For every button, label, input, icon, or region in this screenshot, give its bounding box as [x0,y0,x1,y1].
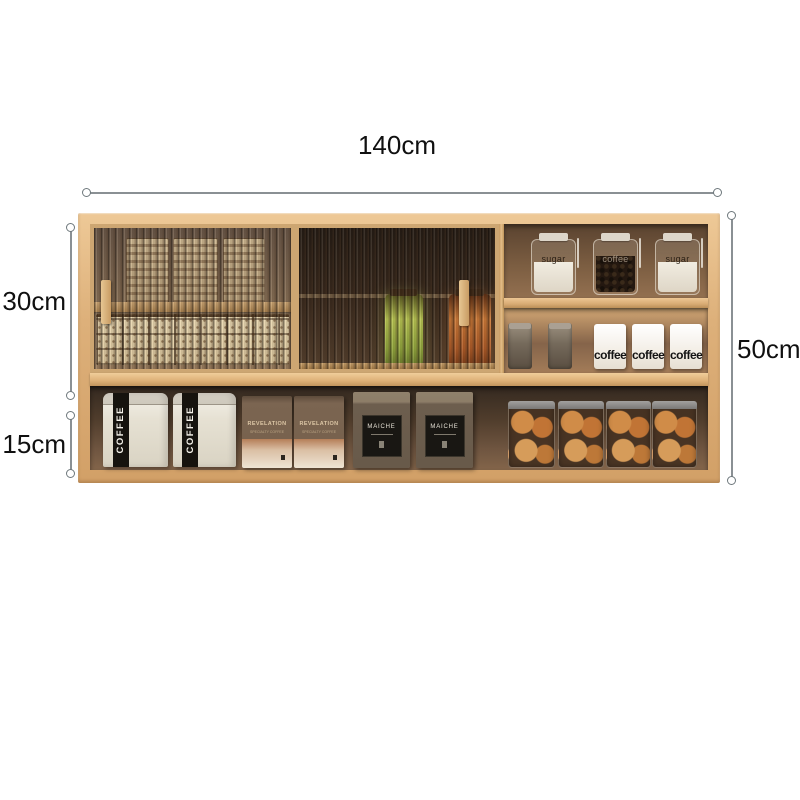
jar-label: sugar [532,254,575,264]
jar-label: sugar [656,254,699,264]
jar-shelf: sugar coffee sugar [504,224,708,298]
middle-shelf-board [90,373,708,386]
dimension-endpoint-circle [66,411,75,420]
kraft-coffee-box: REVELATION SPECIALTY COFFEE [294,396,344,468]
wire-baskets [96,314,289,365]
cookie-jar [558,402,604,468]
lower-height-dimension-label: 15cm [0,429,66,460]
box-label: REVELATION [242,421,292,427]
wall-cabinet: sugar coffee sugar [78,213,720,483]
dimension-endpoint-circle [82,188,91,197]
jar-label: coffee [594,254,637,264]
dimension-endpoint-circle [727,211,736,220]
sugar-jar: sugar [655,239,700,295]
bag-stripe: COFFEE [113,393,129,467]
coffee-bag: COFFEE [173,393,236,467]
dimension-endpoint-circle [66,223,75,232]
box-black-label: MAICHE [362,415,402,457]
shelf-board [504,298,708,308]
jar-contents [658,262,697,292]
bag-label: COFFEE [115,406,126,454]
label-mark [379,441,384,448]
mug-label: coffee [670,348,702,362]
dark-canister [548,323,572,369]
green-jar [385,294,423,366]
box-label: MAICHE [430,424,458,430]
dimension-endpoint-circle [66,469,75,478]
coffee-bean-jar: coffee [593,239,638,295]
glass-door-area [90,224,499,373]
pantry-package [126,238,169,304]
dimension-endpoint-circle [713,188,722,197]
jar-clamp [577,238,579,268]
label-rule [434,434,456,435]
dimension-endpoint-circle [727,476,736,485]
width-dimension-label: 140cm [337,130,457,161]
open-shelves: sugar coffee sugar [504,224,708,373]
sugar-jar: sugar [531,239,576,295]
door-handle [459,280,469,326]
total-height-dimension-label: 50cm [737,334,800,365]
jar-cap [390,289,417,296]
cookie-jar [508,402,555,468]
coffee-mug: coffee [632,324,664,369]
label-rule [371,434,393,435]
coffee-bag: COFFEE [103,393,168,467]
upper-height-dimension-line [70,231,72,392]
jar-clamp [701,238,703,268]
box-label: REVELATION [294,421,344,427]
kraft-coffee-box: REVELATION SPECIALTY COFFEE [242,396,292,468]
mug-shelf: coffee coffee coffee [504,308,708,373]
jar-clamp [639,238,641,268]
upper-height-dimension-label: 30cm [0,286,66,317]
glass-door-right [295,224,500,373]
mug-label: coffee [594,348,626,362]
bag-label: COFFEE [185,406,196,454]
interior-base [299,363,496,369]
box-label: MAICHE [367,424,395,430]
bag-stripe: COFFEE [182,393,198,467]
pantry-package [173,238,218,304]
box-lower-panel [242,439,292,468]
cookie-jar [652,402,697,468]
dimension-endpoint-circle [66,391,75,400]
box-black-label: MAICHE [425,415,465,457]
dark-label-box: MAICHE [353,392,410,468]
jar-contents [534,262,573,292]
box-lower-panel [294,439,344,468]
label-mark [442,441,447,448]
upper-section: sugar coffee sugar [90,224,708,373]
cookie-jar [606,402,651,468]
total-height-dimension-line [731,219,733,477]
coffee-mug: coffee [670,324,702,369]
lower-height-dimension-line [70,419,72,470]
orange-jar [449,294,491,366]
box-subtext: SPECIALTY COFFEE [242,430,292,434]
dark-canister [508,323,532,369]
cabinet-interior: sugar coffee sugar [90,224,708,470]
coffee-mug: coffee [594,324,626,369]
door-handle [101,280,111,324]
box-subtext: SPECIALTY COFFEE [294,430,344,434]
left-door-contents [94,228,291,369]
mug-label: coffee [632,348,664,362]
dark-label-box: MAICHE [416,392,473,468]
glass-door-left [90,224,295,373]
pantry-package [223,238,265,304]
interior-shelf [94,302,291,312]
width-dimension-line [90,192,714,194]
lower-open-shelf: COFFEE COFFEE REVELATION SPECIALTY COFFE… [90,386,708,470]
product-dimension-diagram: 140cm 30cm 15cm 50cm [0,0,800,800]
